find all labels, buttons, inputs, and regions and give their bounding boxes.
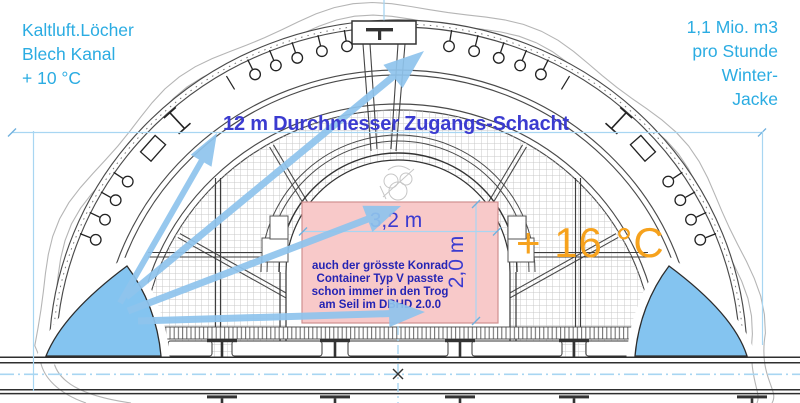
air-volume-label-line-2: pro Stunde (692, 41, 778, 61)
anchor-hook-icon (695, 234, 706, 245)
anchor-hook-icon (469, 46, 480, 57)
i-beam-icon (320, 395, 350, 398)
i-beam-icon (559, 339, 589, 342)
engineering-drawing: 3,2 m 2,0 m auch der grösste Konrad Cont… (0, 0, 800, 403)
anchor-hook-icon (250, 69, 261, 80)
container-note-line-3: schon immer in den Trog (312, 286, 449, 298)
container-note-line-4: am Seil im DBHD 2.0.0 (319, 299, 441, 311)
i-beam-icon (207, 339, 237, 342)
air-volume-label-line-4: Jacke (732, 89, 778, 109)
air-volume-label-line-1: 1,1 Mio. m3 (687, 17, 778, 37)
cold-air-label-line-3: + 10 °C (22, 68, 81, 88)
anchor-hook-icon (444, 41, 455, 52)
anchor-hook-icon (675, 195, 686, 206)
anchor-hook-icon (515, 60, 526, 71)
i-beam-icon (559, 395, 589, 398)
cold-air-label-line-2: Blech Kanal (22, 44, 115, 64)
i-beam-icon (320, 339, 350, 342)
i-beam-icon (221, 398, 224, 403)
anchor-hook-icon (100, 214, 111, 225)
i-beam-icon (207, 395, 237, 398)
anchor-hook-icon (663, 176, 674, 187)
anchor-hook-icon (536, 69, 547, 80)
i-beam-icon (737, 395, 767, 398)
temperature-label: + 16 °C (516, 219, 665, 266)
anchor-hook-icon (110, 195, 121, 206)
deck-panel (586, 341, 632, 356)
anchor-hook-icon (122, 176, 133, 187)
corbel-left-upper (270, 216, 288, 239)
turret-tee-stem (378, 28, 381, 40)
i-beam-icon (459, 342, 462, 357)
turret-box (352, 21, 416, 44)
deck-panel (472, 341, 562, 356)
deck-panel (168, 341, 212, 356)
i-beam-icon (221, 342, 224, 357)
anchor-hook-icon (342, 41, 353, 52)
i-beam-icon (445, 339, 475, 342)
shaft-diameter-label: 12 m Durchmesser Zugangs-Schacht (223, 113, 569, 135)
deck-panel (232, 341, 322, 356)
i-beam-icon (751, 398, 754, 403)
i-beam-icon (334, 398, 337, 403)
i-beam-icon (573, 342, 576, 357)
container-note-line-2: Container Typ V passte (317, 273, 444, 285)
anchor-hook-icon (493, 53, 504, 64)
grating-band (164, 327, 634, 339)
i-beam-icon (573, 398, 576, 403)
anchor-hook-icon (292, 53, 303, 64)
anchor-hook-icon (686, 214, 697, 225)
anchor-hook-icon (271, 60, 282, 71)
drawing-page: 3,2 m 2,0 m auch der grösste Konrad Cont… (0, 0, 800, 403)
anchor-hook-icon (317, 46, 328, 57)
height-dimension-label: 2,0 m (445, 236, 468, 289)
anchor-hook-icon (90, 234, 101, 245)
air-volume-label-line-3: Winter- (722, 65, 779, 85)
i-beam-icon (445, 395, 475, 398)
i-beam-icon (459, 398, 462, 403)
container-note-line-1: auch der grösste Konrad (312, 260, 448, 272)
cold-air-label-line-1: Kaltluft.Löcher (22, 20, 134, 40)
i-beam-icon (334, 342, 337, 357)
